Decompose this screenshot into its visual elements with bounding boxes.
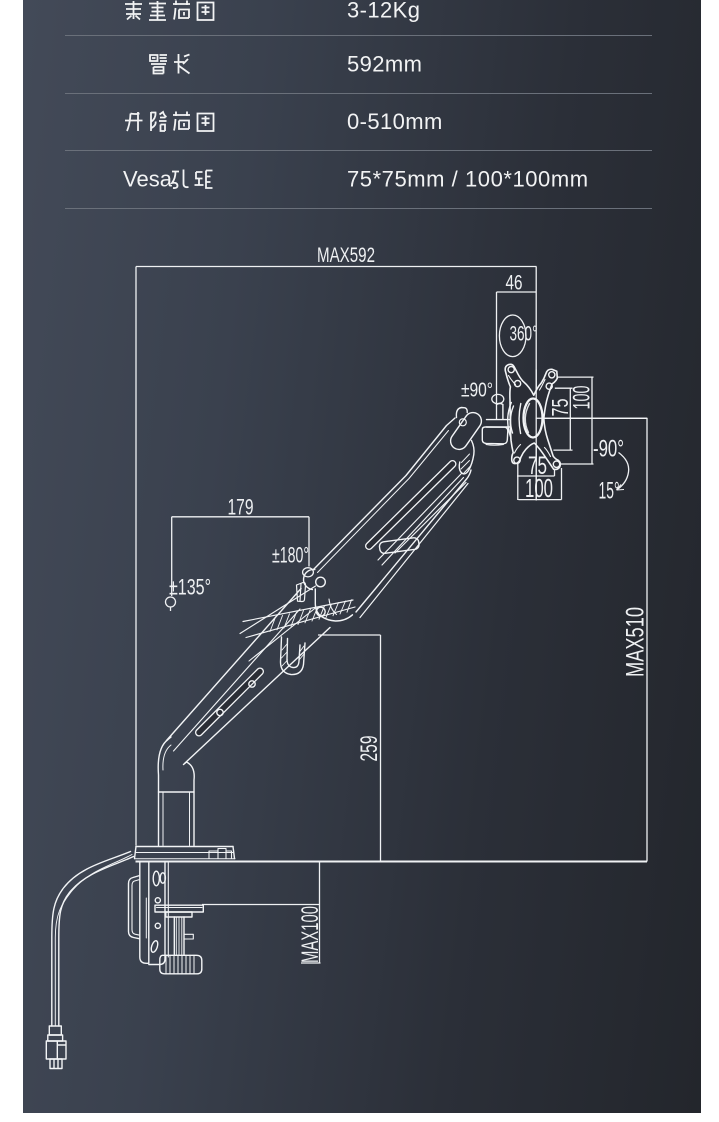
svg-text:±180°: ±180° bbox=[272, 543, 309, 568]
svg-text:259: 259 bbox=[356, 736, 383, 762]
svg-text:MAX592: MAX592 bbox=[317, 243, 375, 267]
svg-text:Vesa: Vesa bbox=[123, 167, 173, 192]
svg-text:±90°: ±90° bbox=[461, 380, 493, 402]
svg-text:360°: 360° bbox=[510, 323, 538, 346]
svg-text:100: 100 bbox=[525, 473, 553, 503]
svg-text:0-510mm: 0-510mm bbox=[347, 109, 443, 134]
svg-text:-90°: -90° bbox=[593, 436, 624, 463]
svg-text:15°: 15° bbox=[599, 478, 620, 505]
svg-text:100: 100 bbox=[569, 386, 596, 410]
svg-text:±135°: ±135° bbox=[169, 575, 211, 600]
svg-text:179: 179 bbox=[228, 495, 254, 520]
svg-text:75*75mm / 100*100mm: 75*75mm / 100*100mm bbox=[347, 167, 589, 192]
svg-text:MAX510: MAX510 bbox=[622, 607, 650, 677]
svg-text:3-12Kg: 3-12Kg bbox=[347, 0, 420, 23]
svg-text:46: 46 bbox=[506, 272, 523, 295]
svg-text:MAX100: MAX100 bbox=[297, 906, 324, 963]
svg-text:592mm: 592mm bbox=[347, 52, 422, 77]
